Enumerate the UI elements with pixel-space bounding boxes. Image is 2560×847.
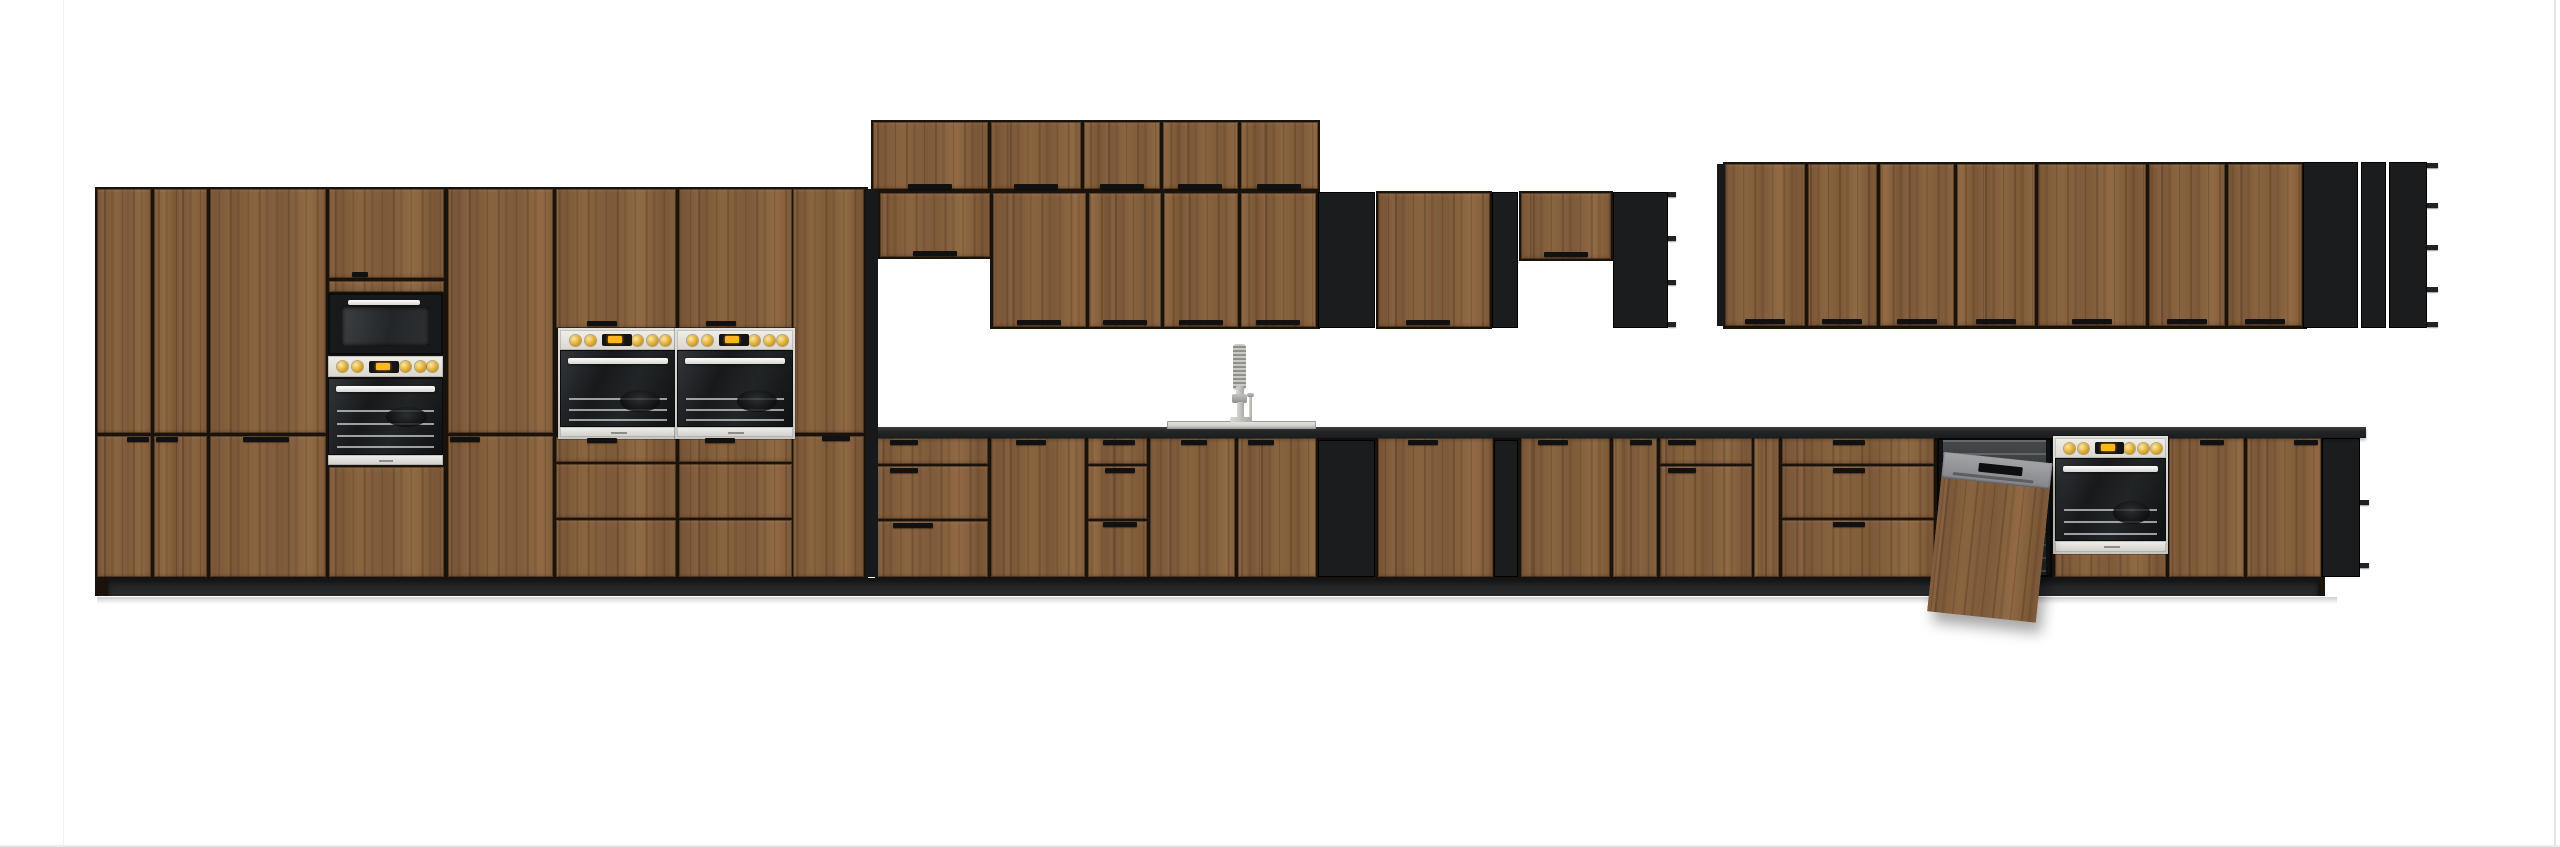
wall-top-door [1163,122,1238,189]
wall-door [1241,193,1316,327]
brand-mark [2104,546,2120,548]
right-wall-door [2149,164,2225,326]
cabinet-handle [913,251,957,256]
oven-tray [620,390,659,412]
cabinet-handle [243,437,289,442]
open-shelf-base-end [2322,438,2360,577]
oven-knob [687,335,698,346]
cabinet-handle [127,437,149,442]
oven-rack [337,435,434,437]
oven-knob [702,335,713,346]
tall-lower-door [97,436,151,577]
oven-knob [2064,443,2075,454]
open-shelf-right-narrow [2361,162,2386,328]
oven-display [369,361,399,373]
kitchen-faucet-part [1230,417,1251,422]
tower-drawer-front [329,281,444,292]
sink-door [1150,438,1235,577]
tall-lower-door [154,436,207,577]
sink-door [1238,438,1316,577]
cabinet-handle [1256,320,1300,325]
tall-lower-door [793,436,864,577]
built-in-microwave [328,293,443,355]
base-door [2169,438,2244,577]
shelf-side-tab [1668,280,1676,285]
cabinet-handle [1248,440,1274,445]
cabinet-handle [1105,468,1135,473]
microwave-screen [342,307,429,346]
open-shelf-wall-left [1318,192,1375,328]
oven-display-window [376,363,390,370]
built-in-double-oven-right-bottom-strip [677,427,793,437]
base-door [1613,438,1657,577]
wall-door [1089,193,1161,327]
cabinet-handle [2245,319,2285,324]
oven-rack [686,419,783,421]
oven-knob [2151,443,2162,454]
right-wall-door [1725,164,1805,326]
shelf-side-tab [1668,322,1676,327]
oven-knob [777,335,788,346]
cabinet-handle [1016,440,1046,445]
oven-handle-bar [685,358,785,364]
wall-top-door [1241,122,1318,189]
cabinet-handle [1668,440,1696,445]
open-shelf-base-left [1318,440,1375,577]
oven-knob [352,361,363,372]
cabinet-handle [1668,468,1696,473]
oven-knob [570,335,581,346]
right-wall-door [1808,164,1877,326]
right-wall-door [1957,164,2035,326]
cabinet-handle [890,440,918,445]
cabinet-handle [1406,320,1450,325]
shelf-side-tab [1668,236,1676,241]
cabinet-handle [1822,319,1862,324]
cabinet-handle [450,437,480,442]
shelf-side-tab [2427,287,2438,292]
cabinet-handle [1103,440,1135,445]
cabinet-handle [1179,320,1223,325]
right-wall-door [1880,164,1954,326]
cabinet-handle [352,272,368,277]
built-in-double-oven-left-bottom-strip [560,427,676,437]
cabinet-handle [890,468,918,473]
wall-mid-short-door [1521,193,1611,259]
open-shelf-right-corner [2389,162,2427,328]
oven-knob [660,335,671,346]
oven-tray [737,390,776,412]
built-in-oven-tower-bottom-strip [328,455,443,465]
shelf-side-tab [2427,203,2438,208]
kitchen-render [0,0,2560,847]
oven-knob [337,361,348,372]
wall-short-door [880,193,990,257]
base-door [1660,466,1752,577]
base-drawer [877,521,988,577]
oven-knob [749,335,760,346]
cabinet-handle [1017,320,1061,325]
oven-rack [569,419,666,421]
oven-display [719,334,749,346]
shelf-side-tab [2360,500,2369,505]
wall-top-door [873,122,988,189]
built-in-oven-right-bottom-strip [2055,541,2166,552]
page-border-left [63,0,64,847]
base-drawer [1088,521,1147,577]
cabinet-handle [1745,319,1785,324]
under-oven-drawer [556,464,676,518]
cabinet-handle [587,438,617,443]
base-drawer [1782,520,1934,577]
base-drawer [877,466,988,519]
built-in-double-oven-right-control-panel [677,330,793,350]
tower-upper-door [329,189,444,278]
base-door [991,438,1085,577]
cabinet-handle [2200,440,2224,445]
wall-top-door [991,122,1081,189]
right-wall-door [2038,164,2146,326]
kitchen-faucet-part [1233,344,1246,390]
oven-display-window [725,336,739,343]
above-oven-door [679,189,792,328]
cabinet-handle [893,523,933,528]
cabinet-handle [1833,440,1865,445]
built-in-double-oven-right-door [677,350,793,427]
base-door [1521,438,1610,577]
oven-knob [764,335,775,346]
cabinet-handle [908,184,952,189]
tall-upper-door [448,189,553,433]
oven-display-window [608,336,622,343]
built-in-double-oven-left-control-panel [560,330,676,350]
open-shelf-right-grid [2303,162,2358,328]
tower-lower-panel [329,467,444,577]
oven-knob [2124,443,2135,454]
wall-mid-door [1378,193,1490,327]
oven-display [602,334,632,346]
oven-knob [585,335,596,346]
cabinet-handle [1833,522,1865,527]
cabinet-handle [1408,440,1438,445]
cabinet-handle [2294,440,2318,445]
base-drawer [1088,466,1147,519]
brand-mark [728,432,744,434]
built-in-double-oven-left-door [560,350,676,427]
wall-top-door [1084,122,1160,189]
cabinet-handle [822,436,850,441]
tall-upper-door [97,189,151,433]
cabinet-handle [1178,184,1222,189]
under-oven-drawer [556,520,676,577]
tall-upper-door [210,189,326,433]
right-run-side-panel [1717,164,1725,326]
kitchen-faucet-part [1247,393,1254,397]
page-border-right [2554,0,2556,847]
oven-rack [337,446,434,448]
base-door [2247,438,2321,577]
shelf-side-tab [2427,163,2438,168]
tall-lower-door [210,436,326,577]
oven-knob [2078,443,2089,454]
oven-handle-bar [568,358,668,364]
shelf-side-tab [2360,563,2369,568]
open-shelf-base-narrow [1494,440,1518,577]
tall-upper-door [154,189,207,433]
under-oven-drawer [679,520,792,577]
wall-door [1164,193,1238,327]
tall-upper-door [793,189,864,433]
cabinet-handle [156,437,178,442]
cabinet-handle [587,321,617,326]
cabinet-handle [1833,468,1865,473]
cabinet-handle [1538,440,1568,445]
base-door [1378,438,1493,577]
base-drawer [1782,466,1934,518]
built-in-oven-tower-door [328,378,443,455]
cabinet-handle [1630,440,1652,445]
cabinet-handle [2167,319,2207,324]
oven-knob [427,361,438,372]
above-oven-door [556,189,676,328]
under-oven-drawer [679,464,792,518]
right-wall-door [2228,164,2302,326]
built-in-oven-right-control-panel [2055,438,2166,458]
shelf-side-tab [2427,245,2438,250]
cabinet-handle [1976,319,2016,324]
cabinet-handle [1897,319,1937,324]
brand-mark [379,460,393,462]
open-shelf-wall-corner [1613,192,1668,328]
semi-integrated-dishwasher-display [1978,463,2022,477]
under-oven-drawer [679,437,792,462]
shelf-side-tab [1668,192,1676,197]
oven-display [2095,442,2124,454]
cabinet-handle [1544,252,1588,257]
built-in-oven-right-door [2055,458,2166,541]
shelf-side-tab [2427,322,2438,327]
oven-knob [647,335,658,346]
cabinet-handle [1100,184,1144,189]
cabinet-handle [706,321,736,326]
oven-rack [2064,533,2157,535]
tall-run-side-panel [866,189,878,577]
open-shelf-wall-narrow [1492,192,1518,328]
base-filler [1754,438,1779,577]
cabinet-handle [1257,184,1301,189]
oven-knob [632,335,643,346]
cabinet-handle [2072,319,2112,324]
oven-display-window [2101,444,2114,451]
cabinet-handle [1103,320,1147,325]
inset-sink-rim [1167,421,1316,429]
cabinet-handle [1181,440,1207,445]
oven-knob [400,361,411,372]
brand-mark [611,432,627,434]
oven-handle-bar [336,386,435,392]
wall-door [993,193,1086,327]
cabinet-handle [705,438,735,443]
oven-knob [2138,443,2149,454]
tower-control-strip [328,356,443,377]
microwave-handle-bar [348,300,420,305]
semi-integrated-dishwasher-door [1927,452,2052,623]
cabinet-handle [1103,522,1137,527]
oven-knob [415,361,426,372]
under-oven-panel [2055,552,2166,577]
cabinet-handle [1014,184,1058,189]
oven-handle-bar [2063,466,2158,472]
tall-lower-door [448,436,553,577]
